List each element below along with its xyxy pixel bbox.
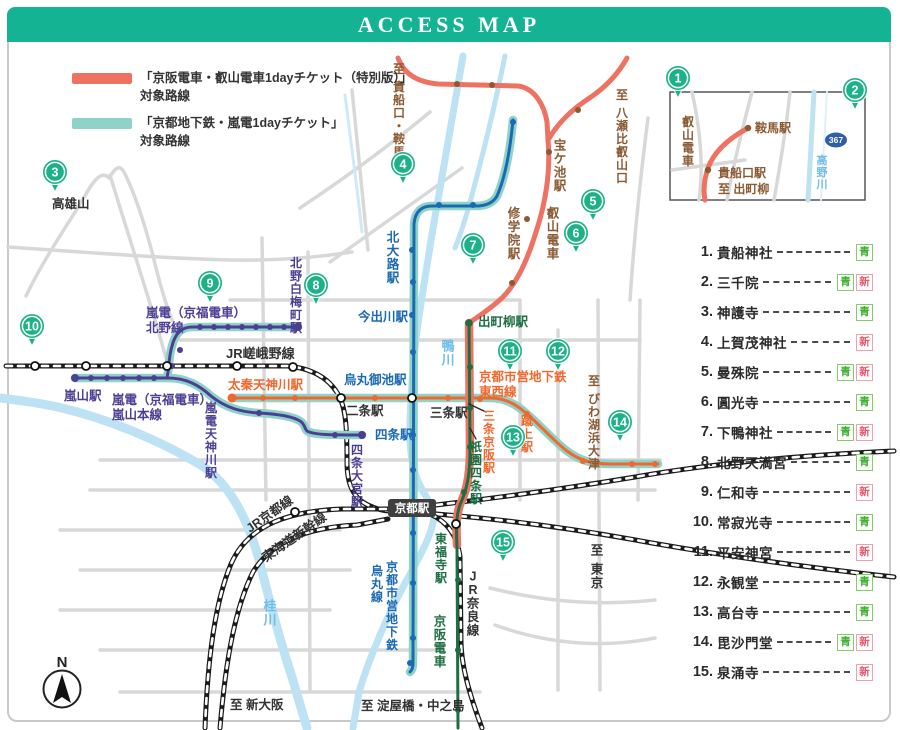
station-dot <box>267 324 273 330</box>
legend-item-0: 「京阪電車・叡山電車1dayチケット（特別版）」対象路線 <box>72 70 412 105</box>
marker-number: 7 <box>470 239 477 253</box>
interchange-station <box>163 362 171 370</box>
spot-name: 平安神宮 <box>717 542 773 562</box>
map-label-inset-kurama-sta: 鞍馬駅 <box>755 120 792 135</box>
compass: N <box>44 654 81 708</box>
tokaido-shinkansen <box>220 519 388 728</box>
map-label-randen-tenjingawa-sta: 嵐電天神川駅 <box>204 400 218 480</box>
leader-line <box>777 551 850 553</box>
spot-marker-6: 6 <box>564 221 589 254</box>
station-dot <box>104 375 110 381</box>
map-label-karasuma-line-2: 烏丸線 <box>370 563 384 604</box>
ticket-badge-aoi: 青 <box>856 574 873 591</box>
map-label-gion-shijo-sta: 祇園四条駅 <box>469 439 483 506</box>
spot-number: 2. <box>687 274 713 290</box>
station-dot <box>228 394 237 403</box>
station-dot <box>197 324 203 330</box>
station-dot <box>410 467 416 473</box>
station-dot <box>225 324 231 330</box>
spot-marker-5: 5 <box>581 189 606 222</box>
spot-list: 1.貴船神社青2.三千院青新3.神護寺青4.上賀茂神社新5.曼殊院青新6.圓光寺… <box>687 237 873 687</box>
map-label-sanjo-sta: 三条駅 <box>430 405 468 420</box>
map-label-demachiyanagi-sta: 出町柳駅 <box>478 314 529 329</box>
spot-number: 6. <box>687 394 713 410</box>
interchange-station <box>291 508 299 516</box>
marker-number: 10 <box>25 320 39 334</box>
road <box>495 625 655 644</box>
spot-marker-7: 7 <box>461 233 486 266</box>
station-dot <box>470 202 476 208</box>
map-label-kitano-hakubaicho-sta: 北野白梅町駅 <box>289 255 303 335</box>
station-dot <box>436 202 442 208</box>
legend-label: 「京阪電車・叡山電車1dayチケット（特別版）」対象路線 <box>140 70 412 105</box>
spot-marker-14: 14 <box>608 410 633 443</box>
station-dot <box>281 324 287 330</box>
leader-line <box>791 461 850 463</box>
ticket-badge-shin: 新 <box>856 274 873 291</box>
map-label-inset-eizan-densha: 叡山電車 <box>681 114 694 168</box>
station-dot <box>445 395 451 401</box>
leader-line <box>763 491 850 493</box>
leader-line <box>763 671 850 673</box>
map-label-karasuma-oike-sta: 烏丸御池駅 <box>344 372 407 387</box>
map-label-shijo-sta: 四条駅 <box>375 427 413 442</box>
spot-list-item-6: 6.圓光寺青 <box>687 387 873 417</box>
spot-list-item-9: 9.仁和寺新 <box>687 477 873 507</box>
spot-name: 常寂光寺 <box>717 512 773 532</box>
spot-number: 14. <box>687 634 713 650</box>
spot-name: 三千院 <box>717 272 759 292</box>
route-367-number: 367 <box>829 135 843 145</box>
marker-number: 12 <box>551 345 565 359</box>
legend-item-1: 「京都地下鉄・嵐電1dayチケット」対象路線 <box>72 115 412 150</box>
spot-name: 圓光寺 <box>717 392 759 412</box>
kyoto-station-label: 京都駅 <box>395 501 430 515</box>
ticket-badge-shin: 新 <box>856 634 873 651</box>
leader-line <box>777 251 850 253</box>
station-dot <box>455 577 461 583</box>
spot-list-item-3: 3.神護寺青 <box>687 297 873 327</box>
spot-name: 貴船神社 <box>717 242 773 262</box>
road <box>598 300 600 690</box>
map-label-randen-kitano-2: 北野線 <box>146 320 184 335</box>
spot-list-item-12: 12.永観堂青 <box>687 567 873 597</box>
station-dot <box>546 149 552 155</box>
map-label-randen-arashiyama-2: 嵐山本線 <box>111 407 163 422</box>
spot-name: 泉涌寺 <box>717 662 759 682</box>
compass-n-label: N <box>57 654 68 671</box>
marker-number: 1 <box>675 72 682 86</box>
leader-line <box>763 581 850 583</box>
road <box>490 588 655 603</box>
station-dot <box>454 81 460 87</box>
spot-name: 神護寺 <box>717 302 759 322</box>
ticket-badge-aoi: 青 <box>837 424 854 441</box>
marker-number: 3 <box>52 166 59 180</box>
spot-list-item-14: 14.毘沙門堂青新 <box>687 627 873 657</box>
leader-line <box>763 611 850 613</box>
station-dot <box>580 458 586 464</box>
ticket-badge-aoi: 青 <box>856 604 873 621</box>
ticket-badge-aoi: 青 <box>856 394 873 411</box>
spot-name: 曼殊院 <box>717 362 759 382</box>
map-label-randen-arashiyama-1: 嵐電（京福電車） <box>111 392 212 407</box>
leader-line <box>763 281 831 283</box>
spot-name: 下鴨神社 <box>717 422 773 442</box>
spot-number: 9. <box>687 484 713 500</box>
station-dot <box>745 125 751 131</box>
ticket-badge-aoi: 青 <box>856 244 873 261</box>
legend-line-swatch <box>72 73 132 84</box>
marker-number: 15 <box>496 536 510 550</box>
spot-number: 4. <box>687 334 713 350</box>
leader-line <box>777 431 831 433</box>
map-label-takao-san: 高雄山 <box>52 196 90 211</box>
station-dot <box>489 82 495 88</box>
leader-line <box>777 641 831 643</box>
map-label-to-yase-hieizanguchi: 至八瀬比叡山口 <box>615 88 629 185</box>
marker-number: 5 <box>590 195 597 209</box>
spot-marker-15: 15 <box>491 530 516 563</box>
map-label-nijo-sta: 二条駅 <box>346 403 384 418</box>
map-label-inset-to-demachiyanagi: 至 出町柳 <box>718 181 769 196</box>
station-dot <box>409 247 415 253</box>
station-dot <box>410 635 416 641</box>
station-dot <box>358 431 366 439</box>
station-dot <box>88 375 94 381</box>
station-dot <box>467 405 473 411</box>
spot-number: 13. <box>687 604 713 620</box>
spot-number: 11. <box>687 544 713 560</box>
station-dot <box>629 461 635 467</box>
map-label-shijo-omiya-sta: 四条大宮駅 <box>350 443 364 509</box>
spot-list-item-8: 8.北野天満宮青 <box>687 447 873 477</box>
spot-number: 3. <box>687 304 713 320</box>
station-dot <box>372 395 378 401</box>
marker-number: 13 <box>506 431 520 445</box>
map-label-karasuma-line-1: 京都市営地下鉄 <box>385 559 398 652</box>
spot-list-item-15: 15.泉涌寺新 <box>687 657 873 687</box>
station-dot <box>253 324 259 330</box>
marker-number: 11 <box>503 345 516 359</box>
leader-line <box>763 371 831 373</box>
interchange-station <box>82 362 90 370</box>
station-dot <box>509 280 515 286</box>
spot-name: 仁和寺 <box>717 482 759 502</box>
station-dot <box>256 410 262 416</box>
eizan-kurama-branch <box>398 58 548 140</box>
legend-line-swatch <box>72 118 132 129</box>
road <box>630 118 648 300</box>
spot-number: 1. <box>687 244 713 260</box>
interchange-station <box>452 520 460 528</box>
ticket-badge-shin: 新 <box>856 664 873 681</box>
station-dot <box>136 375 142 381</box>
station-dot <box>292 395 298 401</box>
map-label-uzumasa-tenjingawa-sta: 太秦天神川駅 <box>228 377 304 392</box>
map-label-sanjo-keihan-sta: 三条京阪駅 <box>482 409 496 475</box>
map-label-to-tokyo: 至東京 <box>591 543 604 590</box>
map-label-shugakuin-sta: 修学院駅 <box>507 205 521 261</box>
station-dot <box>409 312 415 318</box>
station-dot <box>524 216 530 222</box>
station-dot <box>151 375 157 381</box>
map-label-kamo-gawa: 鴨川 <box>440 339 454 368</box>
ticket-badge-aoi: 青 <box>837 274 854 291</box>
ticket-badge-aoi: 青 <box>856 304 873 321</box>
map-label-eizan-densha: 叡山電車 <box>546 205 560 261</box>
station-dot <box>461 489 467 495</box>
station-dot <box>332 432 338 438</box>
road <box>308 252 310 690</box>
map-label-tozai-line-1: 京都市営地下鉄 <box>479 369 567 384</box>
leader-line <box>791 341 850 343</box>
ticket-badge-aoi: 青 <box>837 364 854 381</box>
ticket-badge-shin: 新 <box>856 364 873 381</box>
map-label-katsura-gawa: 桂川 <box>262 599 276 628</box>
map-label-inset-takano-gawa: 高野川 <box>816 153 828 191</box>
spot-list-item-2: 2.三千院青新 <box>687 267 873 297</box>
ticket-badge-aoi: 青 <box>856 454 873 471</box>
spot-marker-9: 9 <box>198 271 223 304</box>
station-dot <box>120 375 126 381</box>
interchange-station <box>31 362 39 370</box>
map-label-keihan-densha: 京阪電車 <box>434 613 447 669</box>
marker-number: 14 <box>613 416 627 430</box>
station-dot <box>410 279 416 285</box>
map-label-takaragaike-sta: 宝ケ池駅 <box>553 137 567 193</box>
road <box>638 300 640 500</box>
station-dot <box>510 119 516 125</box>
spot-list-item-13: 13.高台寺青 <box>687 597 873 627</box>
station-dot <box>652 461 658 467</box>
marker-number: 8 <box>313 279 320 293</box>
spot-list-item-5: 5.曼殊院青新 <box>687 357 873 387</box>
spot-list-item-10: 10.常寂光寺青 <box>687 507 873 537</box>
interchange-station <box>233 362 241 370</box>
map-label-kitaoji-sta: 北大路駅 <box>386 229 400 285</box>
station-dot <box>705 167 711 173</box>
marker-number: 2 <box>852 84 859 98</box>
map-label-jr-nara-line: JR奈良線 <box>466 569 480 637</box>
station-dot <box>410 580 416 586</box>
ticket-badge-aoi: 青 <box>837 634 854 651</box>
station-dot <box>410 530 416 536</box>
spot-number: 15. <box>687 664 713 680</box>
map-label-jr-sagano-line: JR嵯峨野線 <box>226 346 296 361</box>
interchange-station <box>289 363 297 371</box>
spot-number: 12. <box>687 574 713 590</box>
station-dot <box>465 319 473 327</box>
ticket-badge-shin: 新 <box>856 424 873 441</box>
spot-number: 8. <box>687 454 713 470</box>
road <box>26 168 172 320</box>
spot-number: 5. <box>687 364 713 380</box>
tokaido-shinkansen-dashes <box>220 519 388 728</box>
station-dot <box>71 374 79 382</box>
spot-number: 7. <box>687 424 713 440</box>
legend-label: 「京都地下鉄・嵐電1dayチケット」対象路線 <box>140 115 344 150</box>
spot-name: 上賀茂神社 <box>717 332 787 352</box>
map-label-imadegawa-sta: 今出川駅 <box>357 309 409 324</box>
station-dot <box>410 349 416 355</box>
spot-name: 高台寺 <box>717 602 759 622</box>
spot-name: 毘沙門堂 <box>717 632 773 652</box>
marker-number: 6 <box>573 227 580 241</box>
station-dot <box>467 364 473 370</box>
leader-line <box>763 311 850 313</box>
spot-number: 10. <box>687 514 713 530</box>
spot-list-item-1: 1.貴船神社青 <box>687 237 873 267</box>
station-dot <box>407 660 413 666</box>
station-dot <box>575 107 581 113</box>
access-map-page: ACCESS MAP 367京都駅至貴船口・鞍馬至八瀬比叡山口宝ケ池駅修学院駅叡… <box>0 0 900 730</box>
leader-line <box>763 401 850 403</box>
ticket-badge-shin: 新 <box>856 484 873 501</box>
spot-list-item-7: 7.下鴨神社青新 <box>687 417 873 447</box>
leader-line <box>777 521 850 523</box>
station-dot <box>239 324 245 330</box>
station-dot <box>177 347 183 353</box>
interchange-station <box>408 394 416 402</box>
spot-marker-10: 10 <box>20 314 45 347</box>
map-label-tozai-line-2: 東西線 <box>479 384 517 399</box>
marker-number: 9 <box>207 277 214 291</box>
ticket-badge-shin: 新 <box>856 334 873 351</box>
spot-marker-3: 3 <box>43 160 68 193</box>
spot-marker-12: 12 <box>546 339 571 372</box>
ticket-badge-shin: 新 <box>856 544 873 561</box>
map-label-inset-kibuneguchi-sta: 貴船口駅 <box>718 165 767 180</box>
ticket-badge-aoi: 青 <box>856 514 873 531</box>
map-label-to-yodoyabashi-nakanoshima: 至 淀屋橋・中之島 <box>361 698 465 713</box>
map-label-randen-kitano-1: 嵐電（京福電車） <box>145 305 246 320</box>
spot-name: 永観堂 <box>717 572 759 592</box>
station-dot <box>260 395 266 401</box>
station-dot <box>455 647 461 653</box>
map-label-arashiyama-sta: 嵐山駅 <box>63 388 102 403</box>
ticket-legend: 「京阪電車・叡山電車1dayチケット（特別版）」対象路線「京都地下鉄・嵐電1da… <box>72 70 412 160</box>
map-label-to-shin-osaka: 至 新大阪 <box>230 697 284 712</box>
station-dot <box>211 324 217 330</box>
spot-list-item-11: 11.平安神宮新 <box>687 537 873 567</box>
spot-list-item-4: 4.上賀茂神社新 <box>687 327 873 357</box>
spot-name: 北野天満宮 <box>717 452 787 472</box>
map-label-tofukuji-sta: 東福寺駅 <box>434 531 448 585</box>
interchange-station <box>337 394 345 402</box>
